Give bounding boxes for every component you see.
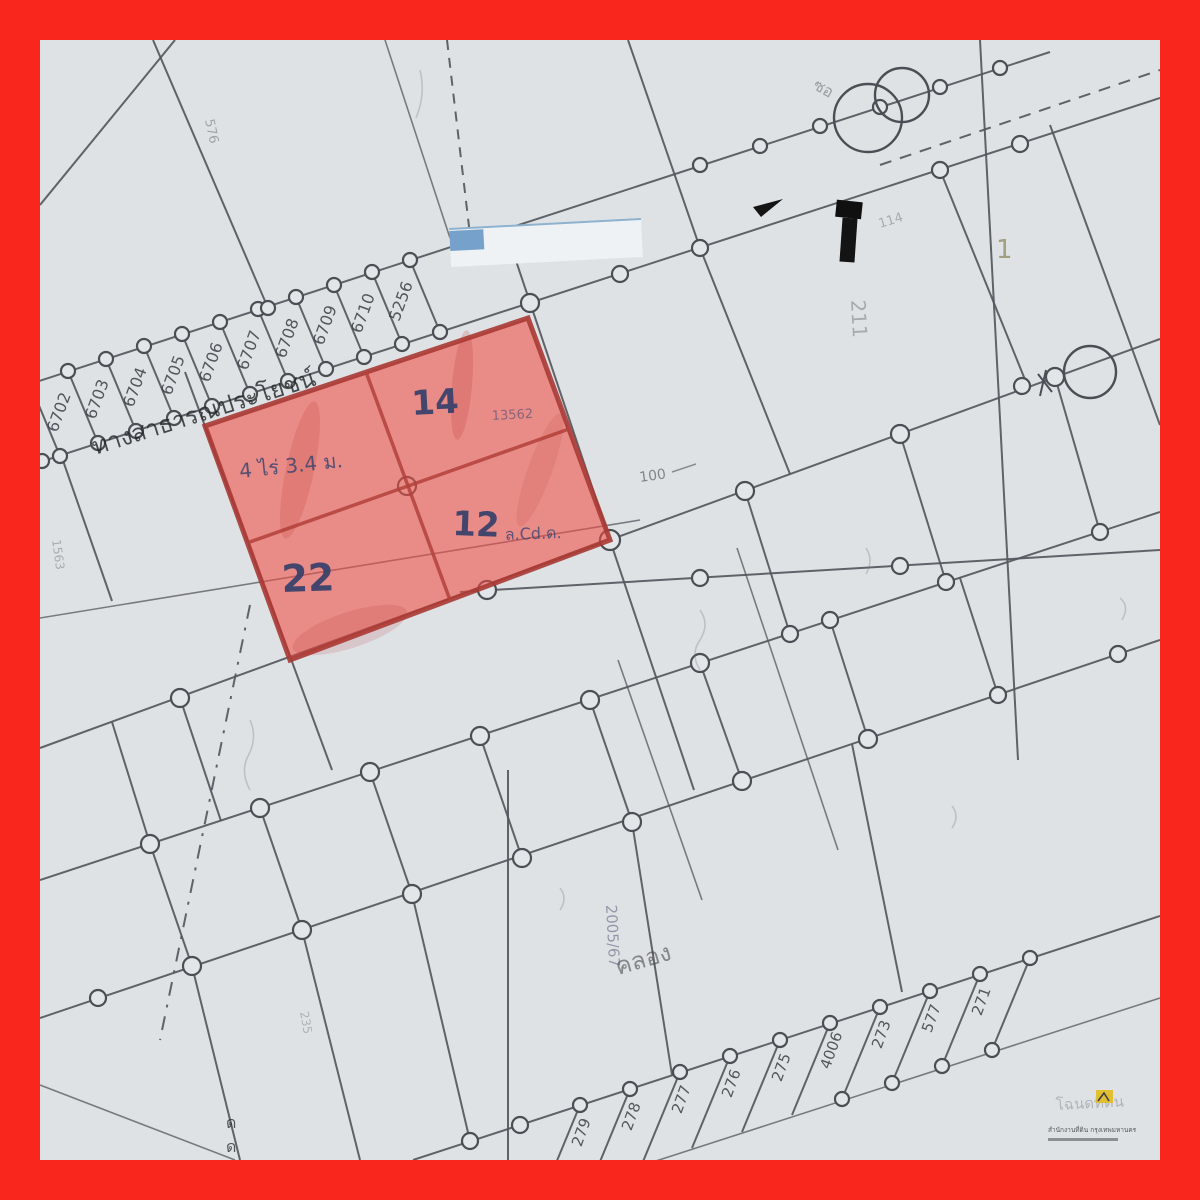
nw-plot-number: 6702 (43, 390, 75, 435)
nw-plot-number: 6710 (347, 291, 379, 336)
watermark: โฉนดที่ดิน สำนักงานที่ดิน กรุงเทพมหานคร (1048, 1090, 1137, 1141)
nw-corner-number: 576 (201, 118, 221, 145)
nw-plot-number: 6705 (157, 353, 189, 398)
plot-note-14: 13562 (491, 407, 533, 424)
cadastral-map: 14 13562 12 ล.Cd.ด. 22 4 ไร่ 3.4 ม. 6702… (40, 40, 1160, 1160)
black-redaction-square (835, 200, 863, 220)
map-canvas: 14 13562 12 ล.Cd.ด. 22 4 ไร่ 3.4 ม. 6702… (40, 40, 1160, 1160)
southeast-strip-labels: 279 278 277 276 275 4006 273 577 271 (568, 985, 995, 1149)
red-frame: 14 13562 12 ล.Cd.ด. 22 4 ไร่ 3.4 ม. 6702… (0, 0, 1200, 1200)
nw-plot-number: 6708 (271, 316, 303, 361)
column-number-label: 211 (846, 299, 872, 338)
watermark-subtitle: สำนักงานที่ดิน กรุงเทพมหานคร (1048, 1125, 1137, 1134)
circles-note-label: ซอ (810, 75, 837, 102)
left-edge-number: 1563 (49, 538, 67, 570)
se-plot-number: 277 (668, 1083, 695, 1116)
se-plot-number: 271 (968, 985, 995, 1018)
se-plot-number: 4006 (816, 1029, 846, 1071)
watermark-title: โฉนดที่ดิน (1055, 1090, 1124, 1114)
plot-stamp-14: 14 (410, 382, 459, 424)
highlighted-plot-group (205, 318, 610, 666)
soi-number-label: 2005/67 (602, 904, 623, 967)
nw-plot-number: 6704 (119, 365, 151, 410)
se-plot-number: 278 (618, 1100, 645, 1133)
dd-mark-2: ด (226, 1137, 236, 1156)
faded-one-label: 1 (996, 235, 1013, 265)
nw-plot-number: 6707 (233, 328, 265, 373)
watermark-underline (1048, 1138, 1118, 1141)
se-plot-number: 577 (918, 1002, 945, 1035)
dd-mark-1: ด (226, 1113, 236, 1132)
nw-plot-number: 6709 (309, 303, 341, 348)
nw-plot-number: 5256 (385, 279, 417, 324)
se-plot-number: 276 (718, 1067, 745, 1100)
distance-label: 100 (638, 466, 667, 486)
plot-note-12: ล.Cd.ด. (504, 523, 561, 544)
bottom-left-number: 235 (297, 1010, 315, 1035)
nw-plot-number: 6706 (195, 340, 227, 385)
se-plot-number: 273 (868, 1018, 895, 1051)
black-redaction-bar (839, 218, 857, 263)
black-redaction-wedge (753, 199, 783, 217)
blue-redaction-accent (449, 229, 484, 251)
plot-stamp-22: 22 (281, 555, 335, 601)
se-plot-number: 275 (768, 1051, 795, 1084)
nw-plot-number: 6703 (81, 377, 113, 422)
landmark-circles (834, 68, 1116, 398)
plot-stamp-12: 12 (452, 504, 501, 546)
distance-arrow (672, 464, 696, 472)
se-plot-number: 279 (568, 1116, 595, 1149)
redactions (449, 199, 863, 267)
survey-note-label: 114 (877, 210, 905, 232)
